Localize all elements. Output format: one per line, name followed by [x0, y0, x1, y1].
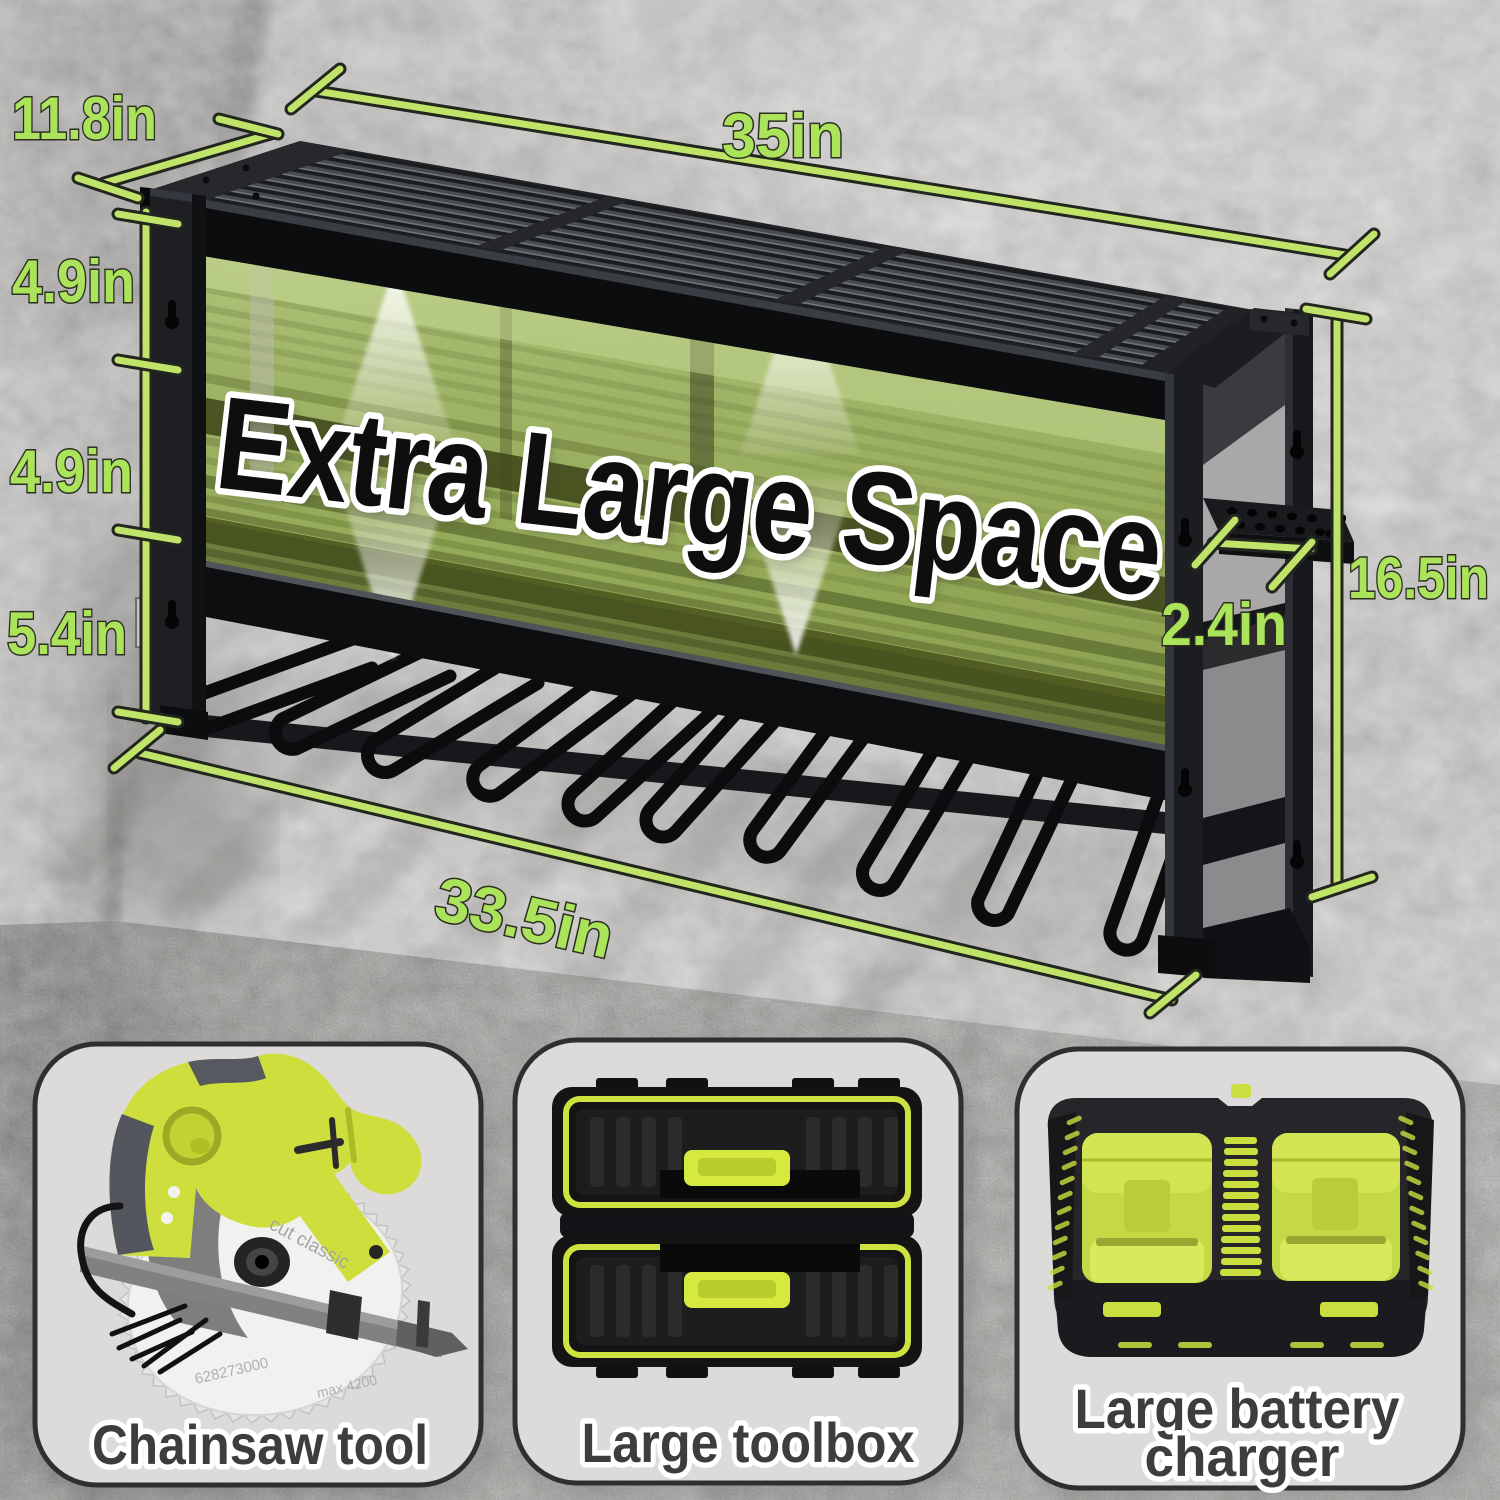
svg-text:4.9in: 4.9in [10, 438, 133, 505]
svg-text:Chainsaw tool: Chainsaw tool [92, 1413, 428, 1476]
svg-text:5.4in: 5.4in [7, 600, 127, 667]
svg-text:Large toolbox: Large toolbox [582, 1411, 915, 1474]
svg-text:charger: charger [1145, 1425, 1340, 1488]
svg-text:2.4in: 2.4in [1161, 591, 1287, 658]
svg-text:35in: 35in [722, 102, 844, 171]
svg-text:11.8in: 11.8in [12, 85, 157, 152]
svg-text:16.5in: 16.5in [1348, 546, 1489, 611]
svg-text:4.9in: 4.9in [12, 248, 135, 315]
